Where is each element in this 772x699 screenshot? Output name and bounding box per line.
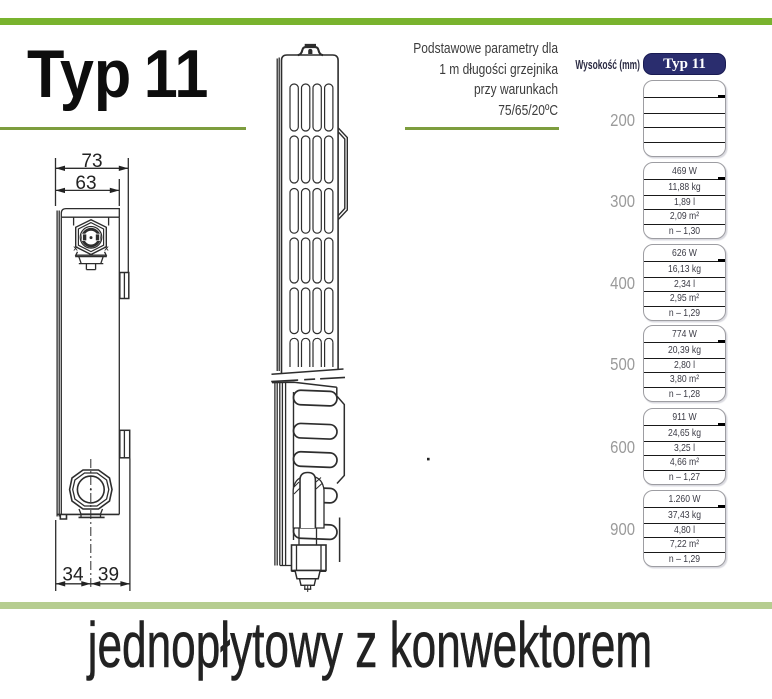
- svg-text:39: 39: [98, 565, 119, 586]
- svg-text:34: 34: [62, 565, 84, 586]
